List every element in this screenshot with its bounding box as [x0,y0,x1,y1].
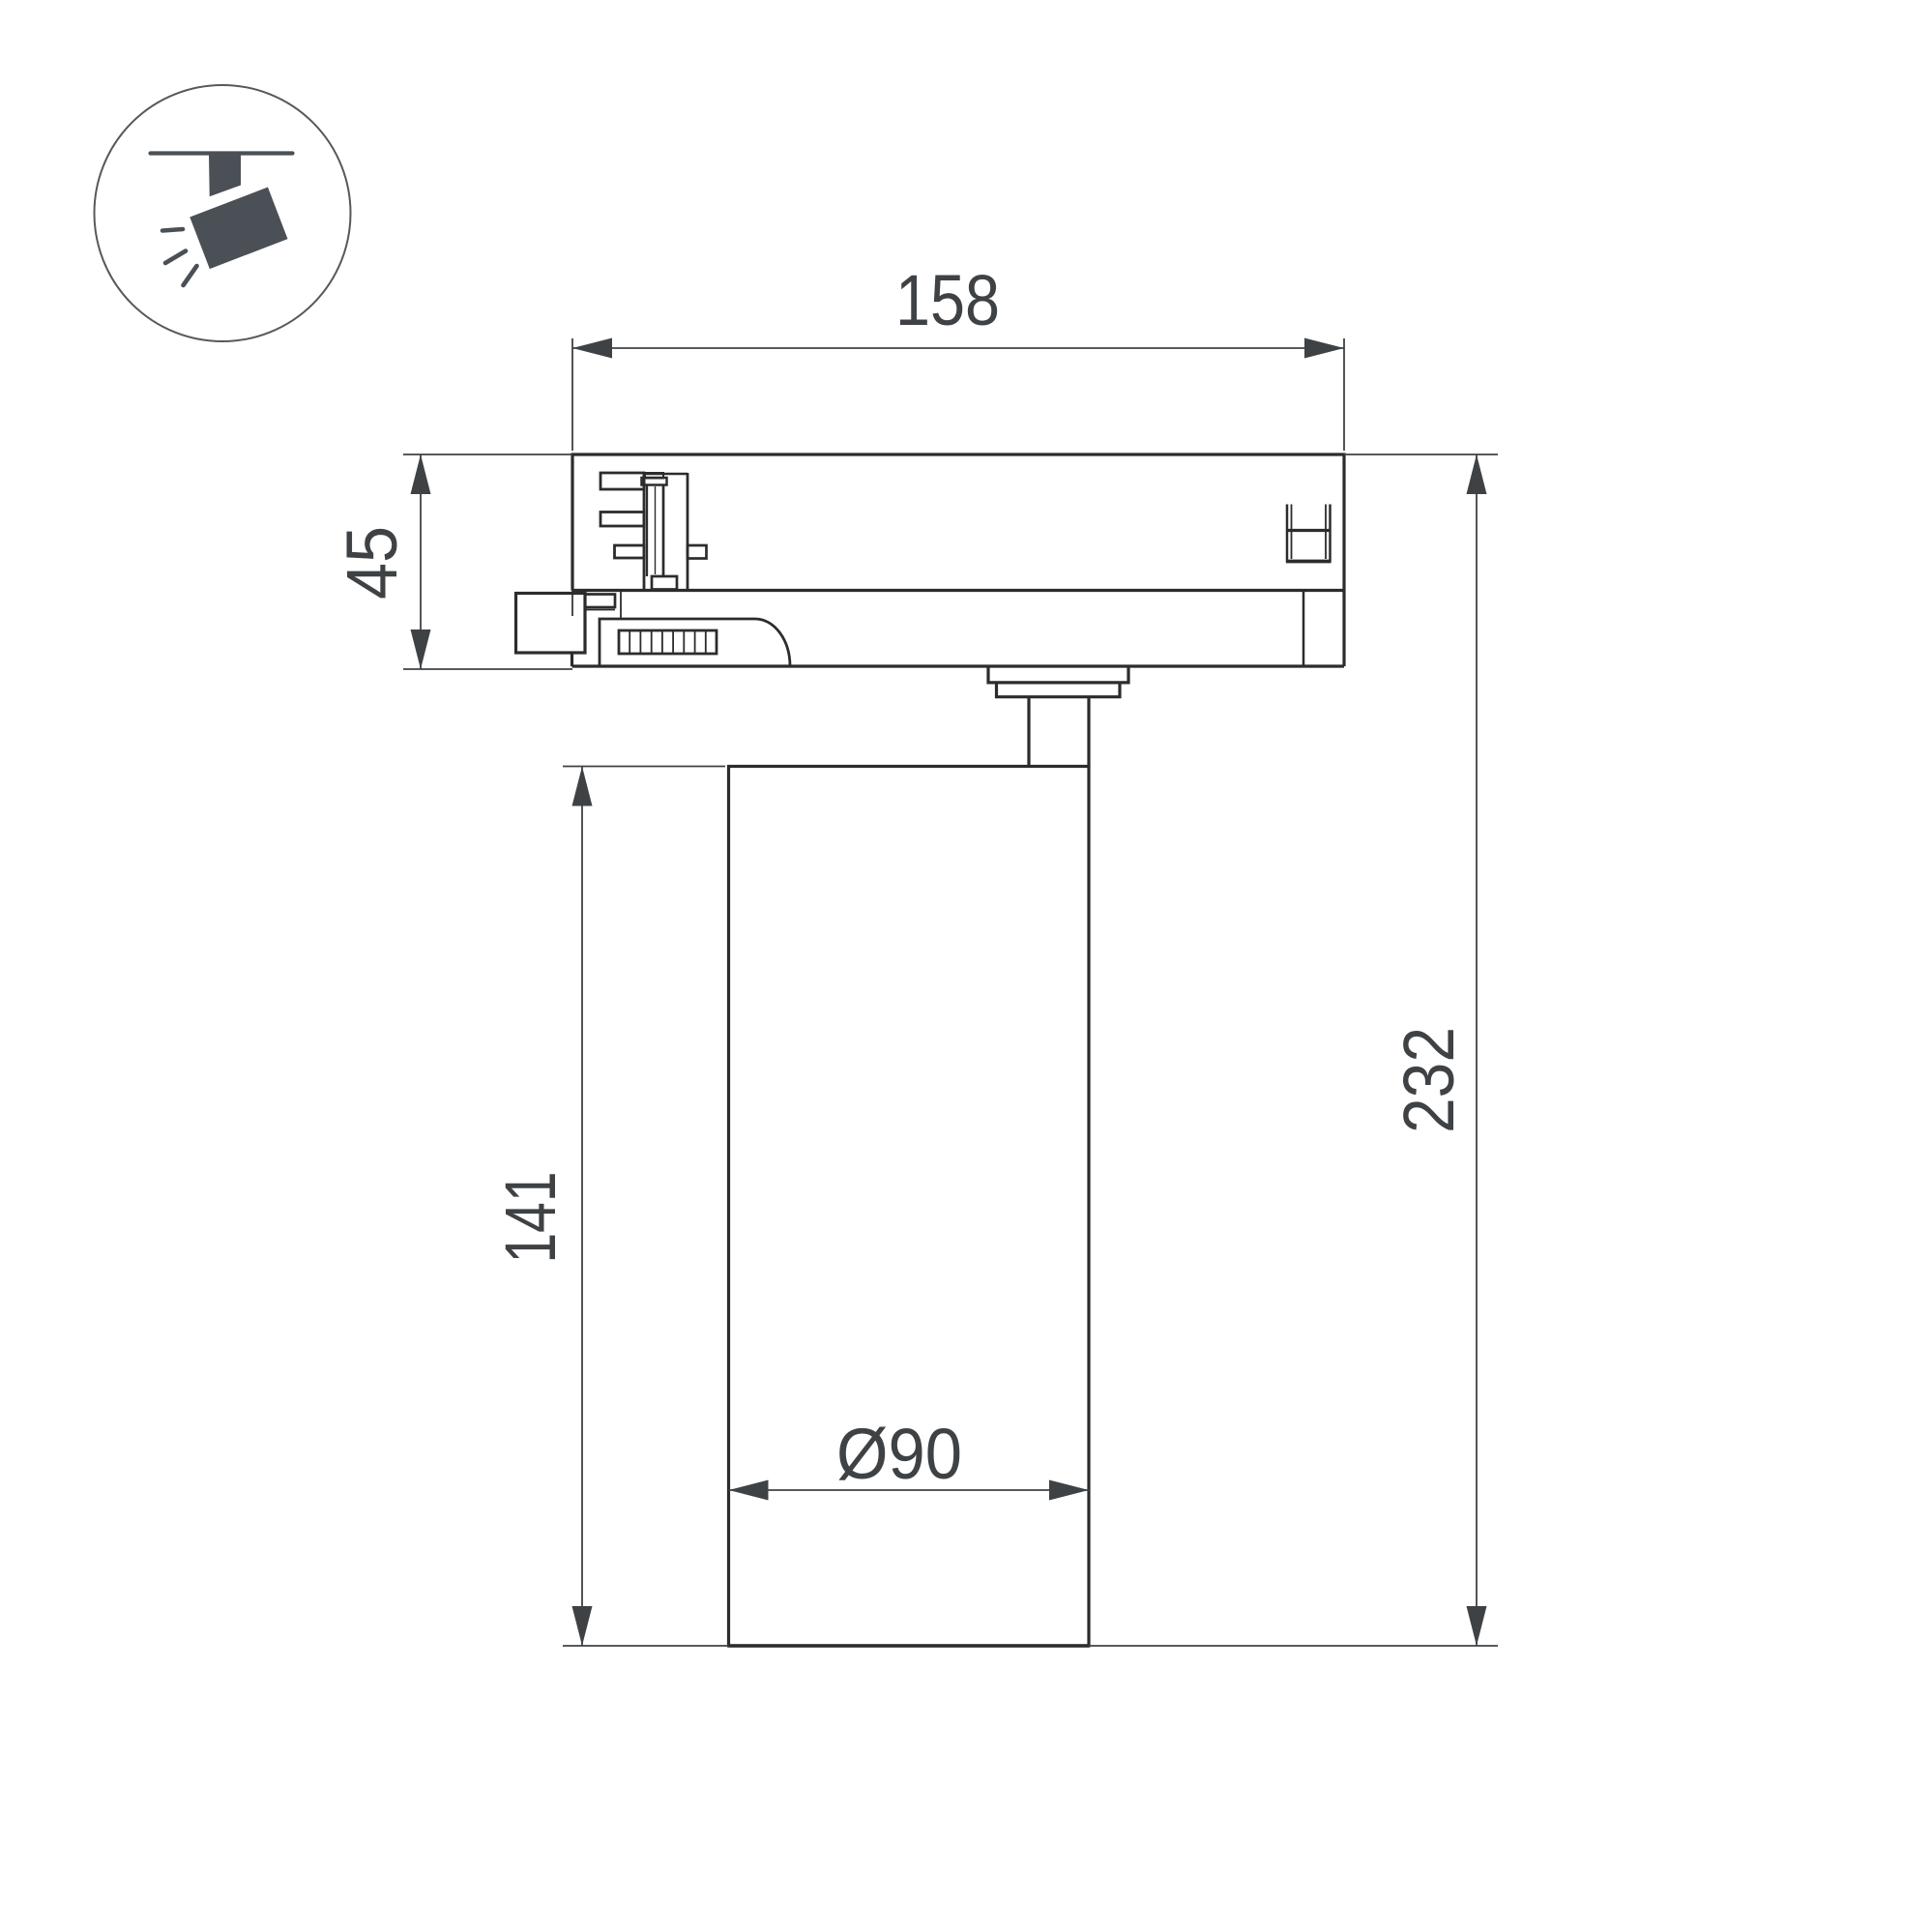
svg-text:Ø90: Ø90 [836,1414,962,1494]
svg-text:45: 45 [332,526,412,600]
svg-text:158: 158 [895,260,1000,340]
svg-text:141: 141 [490,1172,571,1264]
svg-text:232: 232 [1389,1027,1469,1133]
